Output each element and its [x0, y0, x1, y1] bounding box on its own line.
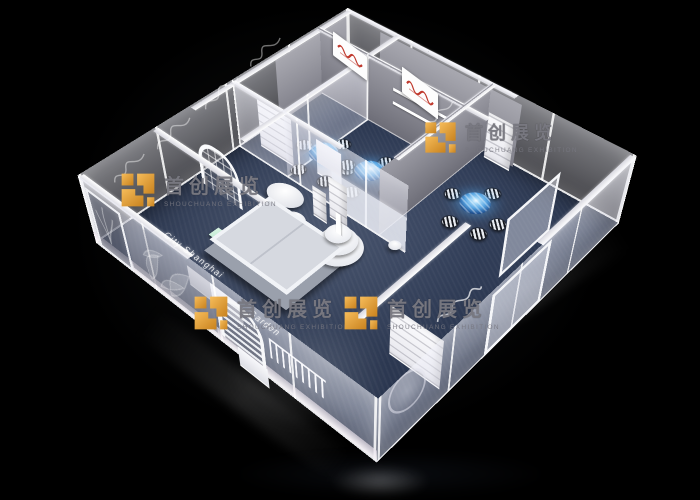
booth-floorplan — [96, 74, 619, 463]
floor-reflection — [330, 466, 430, 496]
render-stage: City Shanghai Garden 首创展览 SHOUCHUANG EXH… — [0, 0, 700, 500]
floor-reflection-blue — [240, 452, 540, 496]
